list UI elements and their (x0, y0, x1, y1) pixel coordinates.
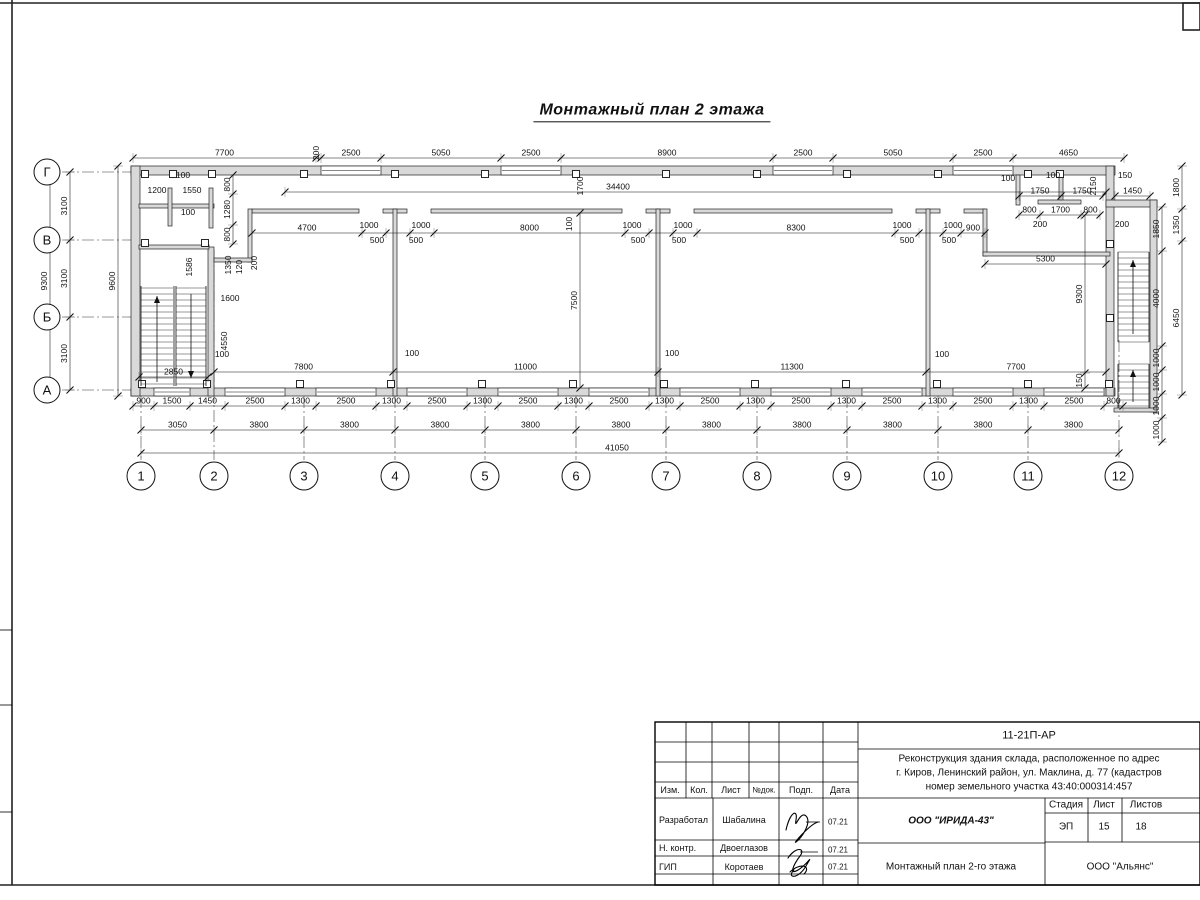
svg-text:1350: 1350 (1171, 215, 1181, 234)
col-header-kol: Кол. (690, 785, 708, 795)
svg-text:5300: 5300 (1036, 254, 1055, 264)
svg-text:2500: 2500 (428, 396, 447, 406)
svg-text:500: 500 (631, 235, 645, 245)
svg-text:100: 100 (1001, 173, 1015, 183)
svg-text:1000: 1000 (893, 220, 912, 230)
svg-text:100: 100 (215, 349, 229, 359)
svg-text:100: 100 (181, 207, 195, 217)
svg-text:1300: 1300 (564, 396, 583, 406)
svg-text:2850: 2850 (164, 367, 183, 377)
design-org: ООО "ИРИДА-43" (908, 815, 994, 827)
svg-text:2500: 2500 (522, 148, 541, 158)
svg-text:7700: 7700 (215, 148, 234, 158)
svg-text:1000: 1000 (944, 220, 963, 230)
sheets-total: 18 (1135, 821, 1146, 833)
svg-text:2500: 2500 (701, 396, 720, 406)
axis-markers: ГВБА123456789101112 (34, 159, 1133, 490)
row-date: 07.21 (828, 862, 848, 871)
row-role: ГИП (659, 862, 677, 872)
svg-text:1000: 1000 (1151, 372, 1161, 391)
svg-text:9600: 9600 (107, 271, 117, 290)
svg-text:150: 150 (1118, 170, 1132, 180)
project-description-line1: Реконструкция здания склада, расположенн… (899, 753, 1160, 765)
svg-text:2500: 2500 (519, 396, 538, 406)
svg-text:500: 500 (672, 235, 686, 245)
svg-text:5050: 5050 (884, 148, 903, 158)
svg-text:3800: 3800 (431, 420, 450, 430)
svg-text:1000: 1000 (1151, 348, 1161, 367)
svg-text:1850: 1850 (1151, 219, 1161, 238)
svg-text:1450: 1450 (1123, 186, 1142, 196)
sheets-label: Листов (1130, 799, 1163, 811)
stage-label: Стадия (1049, 799, 1083, 811)
svg-text:7800: 7800 (294, 362, 313, 372)
svg-text:1700: 1700 (575, 176, 585, 195)
svg-text:3100: 3100 (59, 269, 69, 288)
svg-text:100: 100 (564, 217, 574, 231)
svg-text:3800: 3800 (521, 420, 540, 430)
svg-text:1000: 1000 (674, 220, 693, 230)
svg-text:100: 100 (935, 349, 949, 359)
svg-text:1350: 1350 (223, 255, 233, 274)
project-description-line3: номер земельного участка 43:40:000314:45… (926, 781, 1133, 793)
floor-plan-drawing: 7700250050502500890025005050250046509001… (0, 0, 1200, 900)
svg-text:3050: 3050 (168, 420, 187, 430)
svg-text:9300: 9300 (39, 271, 49, 290)
svg-text:6450: 6450 (1171, 308, 1181, 327)
svg-text:1000: 1000 (1151, 396, 1161, 415)
svg-text:100: 100 (405, 348, 419, 358)
walls (131, 166, 1157, 412)
page-title: Монтажный план 2 этажа (533, 101, 770, 122)
svg-text:Г: Г (43, 165, 50, 180)
svg-text:1600: 1600 (221, 293, 240, 303)
svg-text:А: А (43, 383, 52, 398)
svg-text:7700: 7700 (1007, 362, 1026, 372)
svg-text:В: В (43, 233, 52, 248)
svg-text:3: 3 (300, 469, 307, 484)
svg-text:2500: 2500 (337, 396, 356, 406)
svg-text:1000: 1000 (412, 220, 431, 230)
svg-text:7: 7 (662, 469, 669, 484)
svg-text:8000: 8000 (520, 223, 539, 233)
svg-text:2500: 2500 (610, 396, 629, 406)
svg-text:41050: 41050 (605, 443, 629, 453)
svg-text:11300: 11300 (780, 362, 803, 372)
svg-text:3800: 3800 (883, 420, 902, 430)
svg-text:800: 800 (1106, 396, 1120, 406)
svg-text:1500: 1500 (163, 396, 182, 406)
svg-text:34400: 34400 (606, 182, 630, 192)
column-marks (139, 171, 1114, 388)
svg-text:1586: 1586 (184, 257, 194, 276)
svg-text:4650: 4650 (1059, 148, 1078, 158)
svg-text:500: 500 (409, 235, 423, 245)
svg-text:2: 2 (210, 469, 217, 484)
svg-text:2500: 2500 (974, 148, 993, 158)
svg-text:1300: 1300 (746, 396, 765, 406)
svg-text:4550: 4550 (219, 331, 229, 350)
project-code: 11-21П-АР (1002, 730, 1056, 743)
row-name: Двоеглазов (720, 843, 768, 853)
sheet-label: Лист (1093, 799, 1115, 811)
svg-text:100: 100 (1046, 170, 1060, 180)
col-header-podp: Подп. (789, 785, 813, 795)
svg-text:100: 100 (665, 348, 679, 358)
svg-text:500: 500 (942, 235, 956, 245)
svg-text:8300: 8300 (787, 223, 806, 233)
svg-text:4000: 4000 (1151, 289, 1161, 308)
svg-text:11: 11 (1021, 469, 1035, 484)
svg-text:3800: 3800 (974, 420, 993, 430)
svg-text:11000: 11000 (514, 362, 537, 372)
svg-text:1300: 1300 (382, 396, 401, 406)
svg-text:2500: 2500 (794, 148, 813, 158)
svg-text:500: 500 (900, 235, 914, 245)
svg-text:1280: 1280 (222, 200, 232, 219)
signatures (786, 813, 820, 876)
svg-text:1300: 1300 (291, 396, 310, 406)
stage-value: ЭП (1059, 821, 1073, 833)
svg-text:1000: 1000 (623, 220, 642, 230)
svg-text:1300: 1300 (928, 396, 947, 406)
svg-text:1300: 1300 (1019, 396, 1038, 406)
contractor-org: ООО "Альянс" (1087, 861, 1154, 873)
svg-text:2500: 2500 (246, 396, 265, 406)
svg-text:1750: 1750 (1031, 186, 1050, 196)
svg-text:1000: 1000 (360, 220, 379, 230)
svg-text:9: 9 (843, 469, 850, 484)
row-role: Разработал (659, 815, 708, 825)
svg-text:10: 10 (931, 469, 945, 484)
sheet-subject: Монтажный план 2-го этажа (886, 861, 1016, 873)
svg-text:2500: 2500 (792, 396, 811, 406)
svg-text:800: 800 (222, 177, 232, 191)
svg-text:2500: 2500 (342, 148, 361, 158)
svg-text:3800: 3800 (612, 420, 631, 430)
sheet-frame (0, 0, 1200, 885)
svg-text:6: 6 (572, 469, 579, 484)
svg-text:Б: Б (43, 310, 52, 325)
svg-text:120: 120 (234, 260, 244, 274)
svg-text:1200: 1200 (148, 185, 167, 195)
svg-text:5050: 5050 (432, 148, 451, 158)
svg-text:200: 200 (311, 146, 321, 160)
svg-text:1550: 1550 (183, 185, 202, 195)
col-header-data: Дата (830, 785, 850, 795)
row-name: Коротаев (725, 862, 764, 872)
drawing-sheet: 7700250050502500890025005050250046509001… (0, 0, 1200, 900)
svg-text:3100: 3100 (59, 344, 69, 363)
svg-text:8: 8 (753, 469, 760, 484)
svg-text:1300: 1300 (473, 396, 492, 406)
svg-text:9300: 9300 (1074, 284, 1084, 303)
svg-text:5: 5 (481, 469, 488, 484)
svg-text:1: 1 (137, 469, 144, 484)
svg-text:800: 800 (1022, 205, 1036, 215)
signature-scribble (788, 850, 810, 877)
svg-text:7500: 7500 (569, 291, 579, 310)
col-header-ndok: №док. (752, 785, 775, 794)
svg-text:1300: 1300 (655, 396, 674, 406)
project-description-line2: г. Киров, Ленинский район, ул. Маклина, … (896, 767, 1162, 779)
row-date: 07.21 (828, 845, 848, 854)
col-header-list: Лист (721, 785, 741, 795)
svg-text:200: 200 (1115, 219, 1129, 229)
stairs (141, 252, 1149, 408)
svg-text:200: 200 (249, 256, 259, 270)
svg-text:3800: 3800 (702, 420, 721, 430)
svg-text:4700: 4700 (298, 223, 317, 233)
svg-text:500: 500 (370, 235, 384, 245)
signature-scribble (786, 813, 818, 842)
svg-text:3800: 3800 (250, 420, 269, 430)
col-header-izm: Изм. (660, 785, 679, 795)
svg-text:1800: 1800 (1171, 178, 1181, 197)
row-date: 07.21 (828, 817, 848, 826)
svg-text:800: 800 (1083, 205, 1097, 215)
svg-text:1300: 1300 (837, 396, 856, 406)
svg-text:3100: 3100 (59, 196, 69, 215)
sheet-number: 15 (1098, 821, 1109, 833)
svg-text:12: 12 (1112, 469, 1126, 484)
svg-text:100: 100 (176, 170, 190, 180)
row-name: Шабалина (722, 815, 765, 825)
svg-text:4: 4 (391, 469, 398, 484)
svg-text:3800: 3800 (793, 420, 812, 430)
svg-text:800: 800 (222, 227, 232, 241)
svg-text:2500: 2500 (883, 396, 902, 406)
svg-text:1450: 1450 (198, 396, 217, 406)
svg-text:1000: 1000 (1151, 420, 1161, 439)
svg-text:150: 150 (1074, 373, 1084, 387)
svg-text:900: 900 (136, 396, 150, 406)
svg-text:1700: 1700 (1051, 205, 1070, 215)
svg-text:2500: 2500 (974, 396, 993, 406)
svg-text:900: 900 (966, 223, 980, 233)
svg-text:2500: 2500 (1065, 396, 1084, 406)
svg-text:8900: 8900 (658, 148, 677, 158)
svg-text:200: 200 (1033, 219, 1047, 229)
svg-text:2150: 2150 (1088, 176, 1098, 195)
svg-text:3800: 3800 (340, 420, 359, 430)
row-role: Н. контр. (659, 843, 696, 853)
svg-text:3800: 3800 (1064, 420, 1083, 430)
axis-lines (62, 172, 1119, 460)
